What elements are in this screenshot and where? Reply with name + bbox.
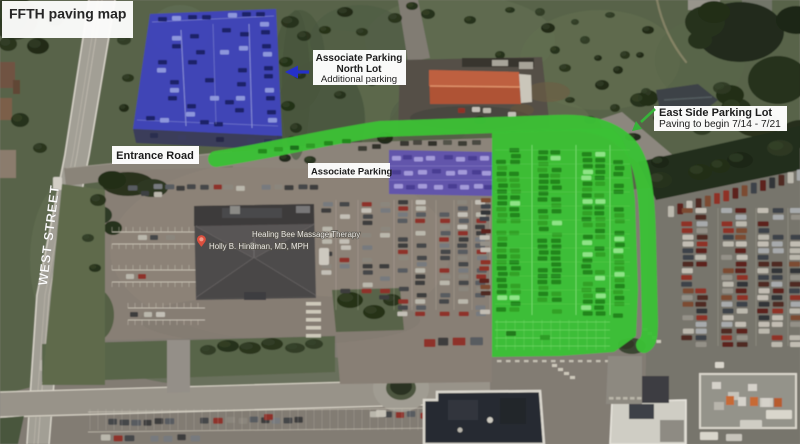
svg-text:Additional parking: Additional parking bbox=[321, 74, 397, 85]
svg-text:Associate Parking: Associate Parking bbox=[311, 166, 393, 177]
svg-text:Entrance Road: Entrance Road bbox=[116, 150, 194, 162]
svg-text:Paving to begin 7/14 - 7/21: Paving to begin 7/14 - 7/21 bbox=[659, 119, 781, 130]
svg-text:Holly B. Hindman, MD, MPH: Holly B. Hindman, MD, MPH bbox=[209, 242, 309, 251]
svg-text:Healing Bee Massage Therapy: Healing Bee Massage Therapy bbox=[252, 230, 360, 239]
svg-text:FFTH paving map: FFTH paving map bbox=[9, 6, 126, 22]
svg-text:East Side Parking Lot: East Side Parking Lot bbox=[659, 107, 772, 119]
svg-text:Associate Parking: Associate Parking bbox=[316, 53, 403, 64]
